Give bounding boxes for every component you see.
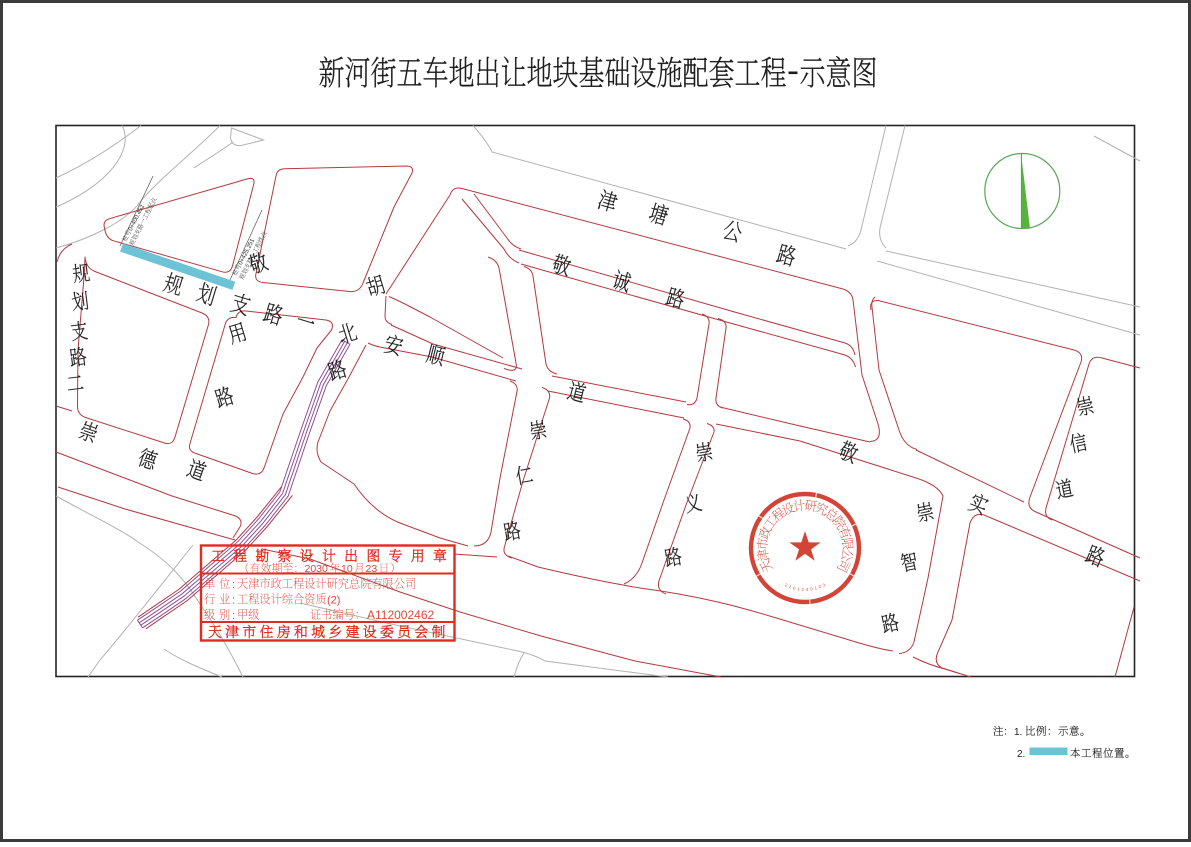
svg-text::: :	[232, 595, 235, 607]
svg-text:2.: 2.	[1017, 749, 1025, 760]
svg-text:10: 10	[341, 563, 353, 575]
svg-text:1.: 1.	[1014, 727, 1022, 738]
svg-text:2030: 2030	[305, 563, 329, 575]
svg-text:(2): (2)	[327, 595, 340, 607]
svg-text:23: 23	[366, 563, 378, 575]
svg-text::: :	[232, 610, 235, 622]
svg-text:A112002462: A112002462	[367, 608, 435, 622]
svg-text::: :	[232, 579, 235, 591]
